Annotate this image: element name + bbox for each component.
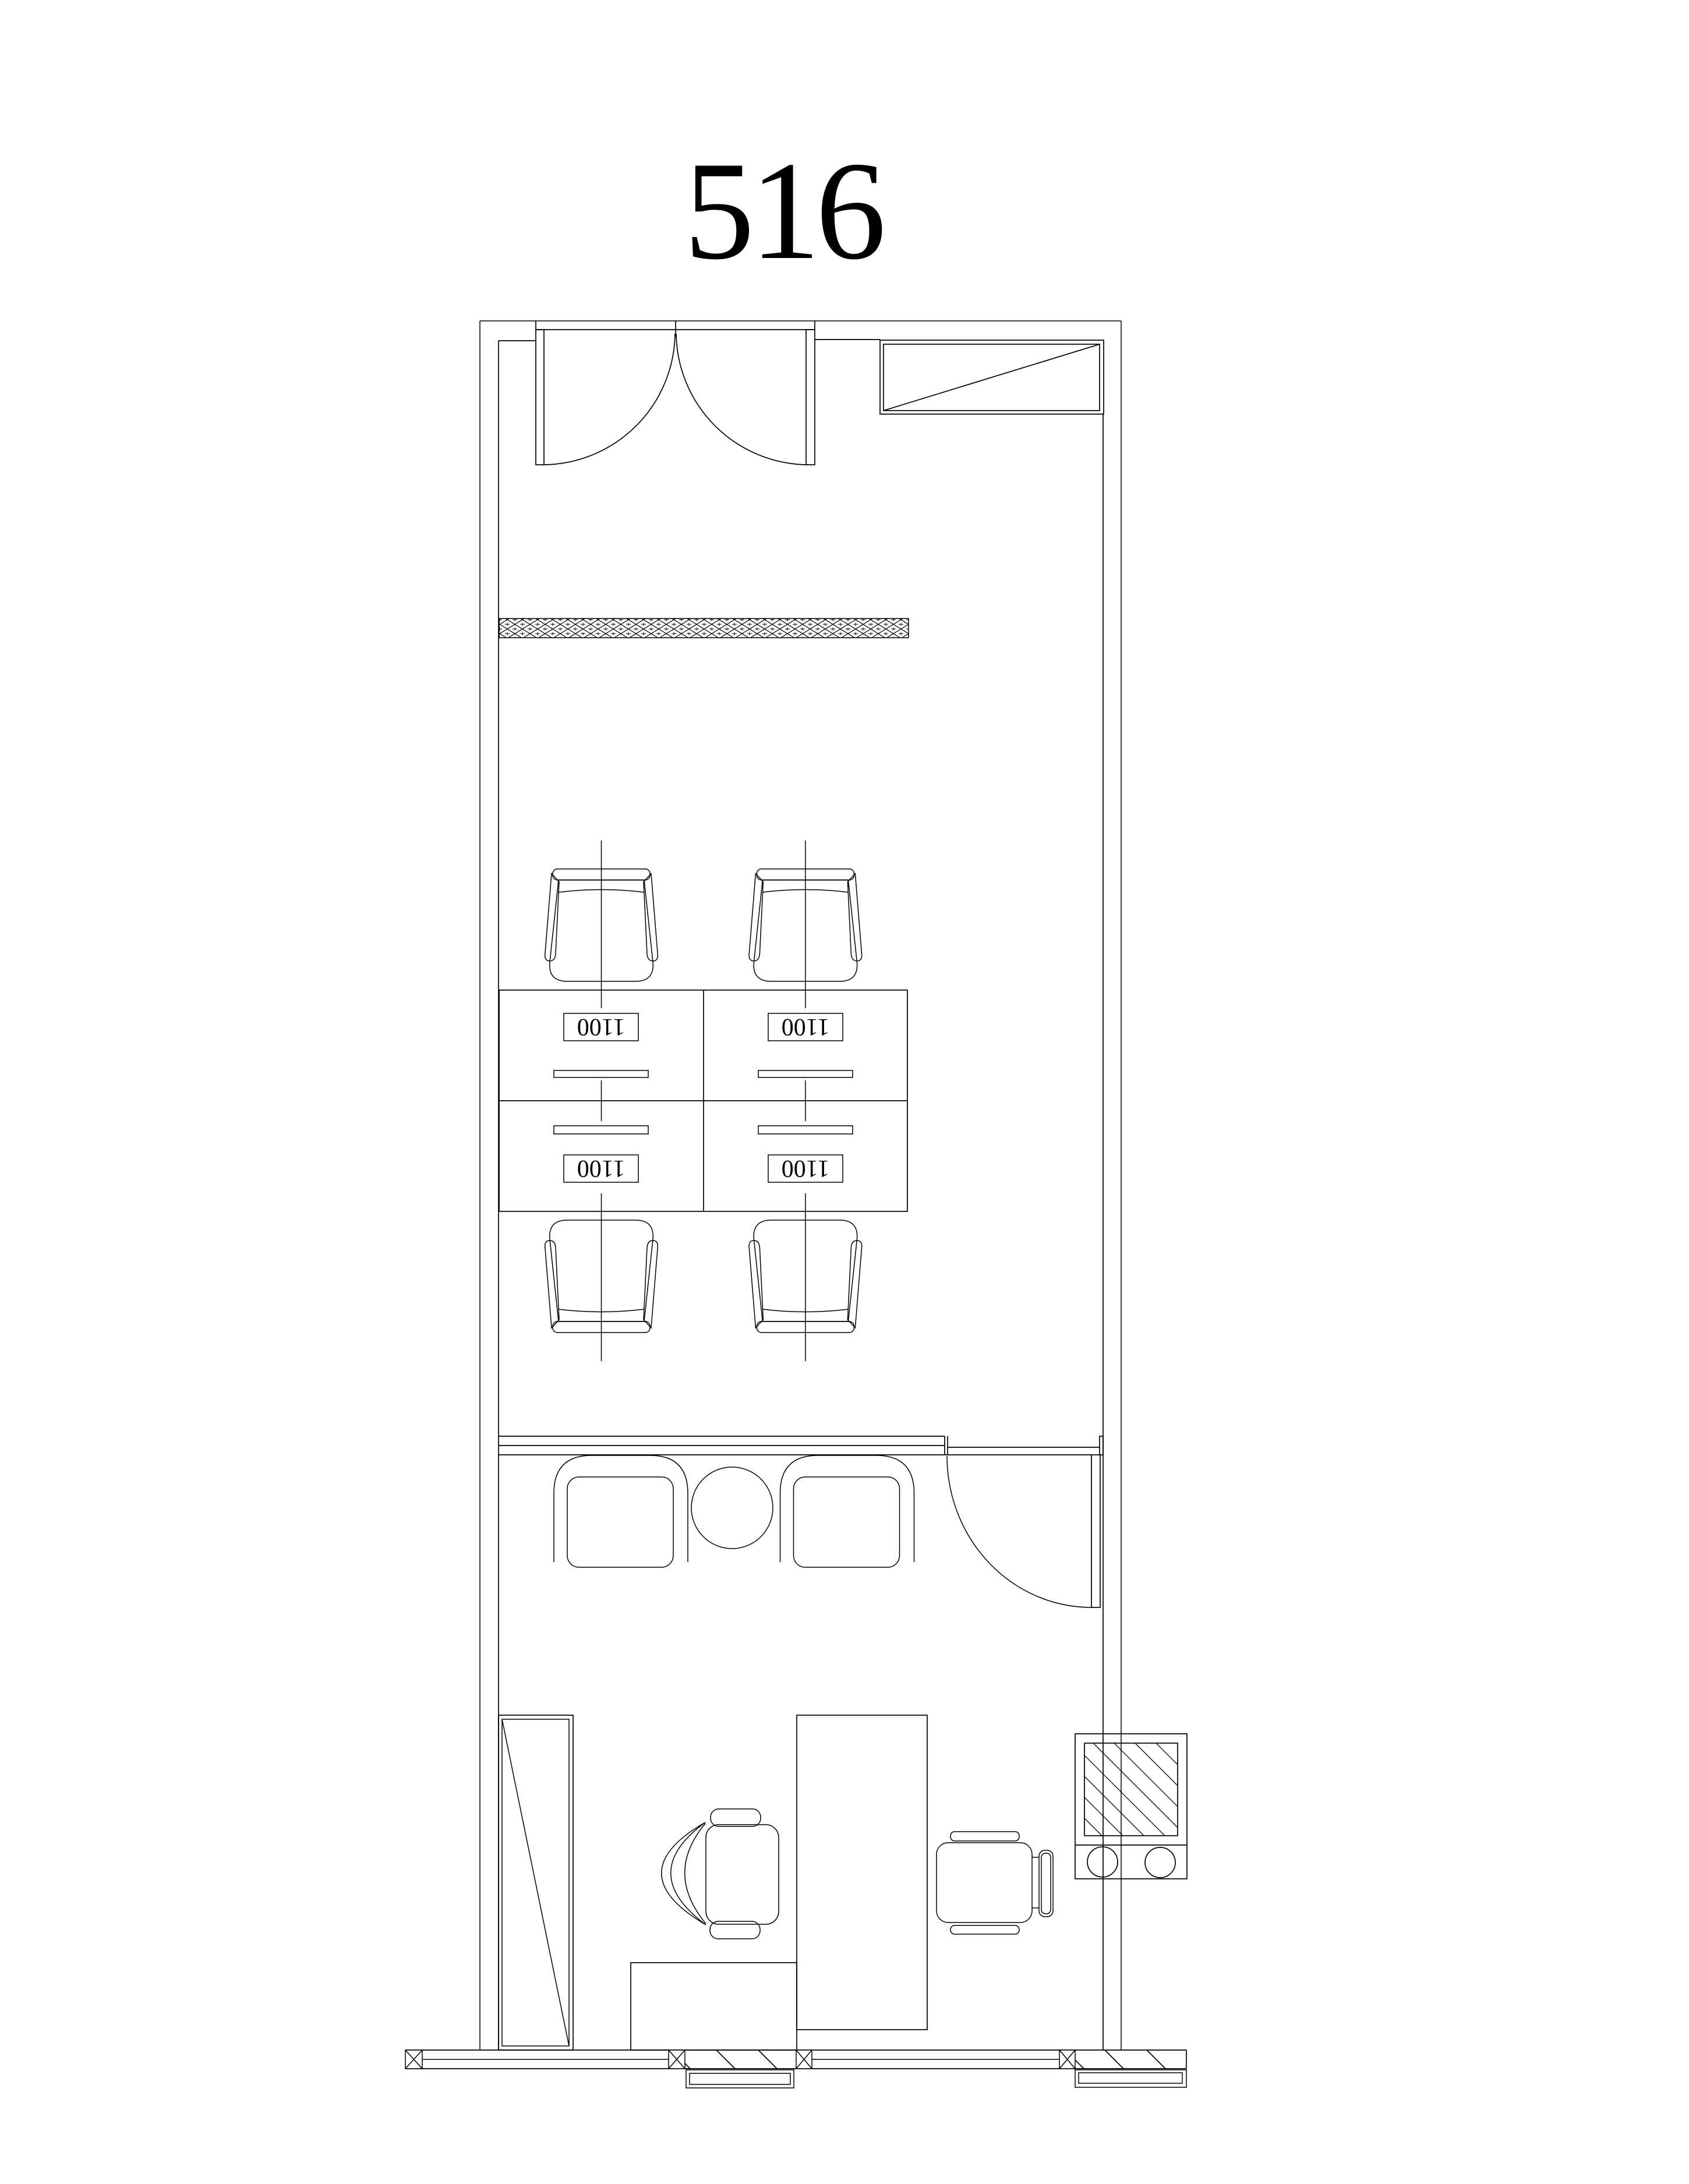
svg-text:1100: 1100	[782, 1013, 829, 1040]
svg-text:516: 516	[684, 133, 882, 289]
svg-text:1100: 1100	[577, 1013, 625, 1040]
svg-text:1100: 1100	[782, 1155, 829, 1182]
svg-text:1100: 1100	[577, 1155, 625, 1182]
